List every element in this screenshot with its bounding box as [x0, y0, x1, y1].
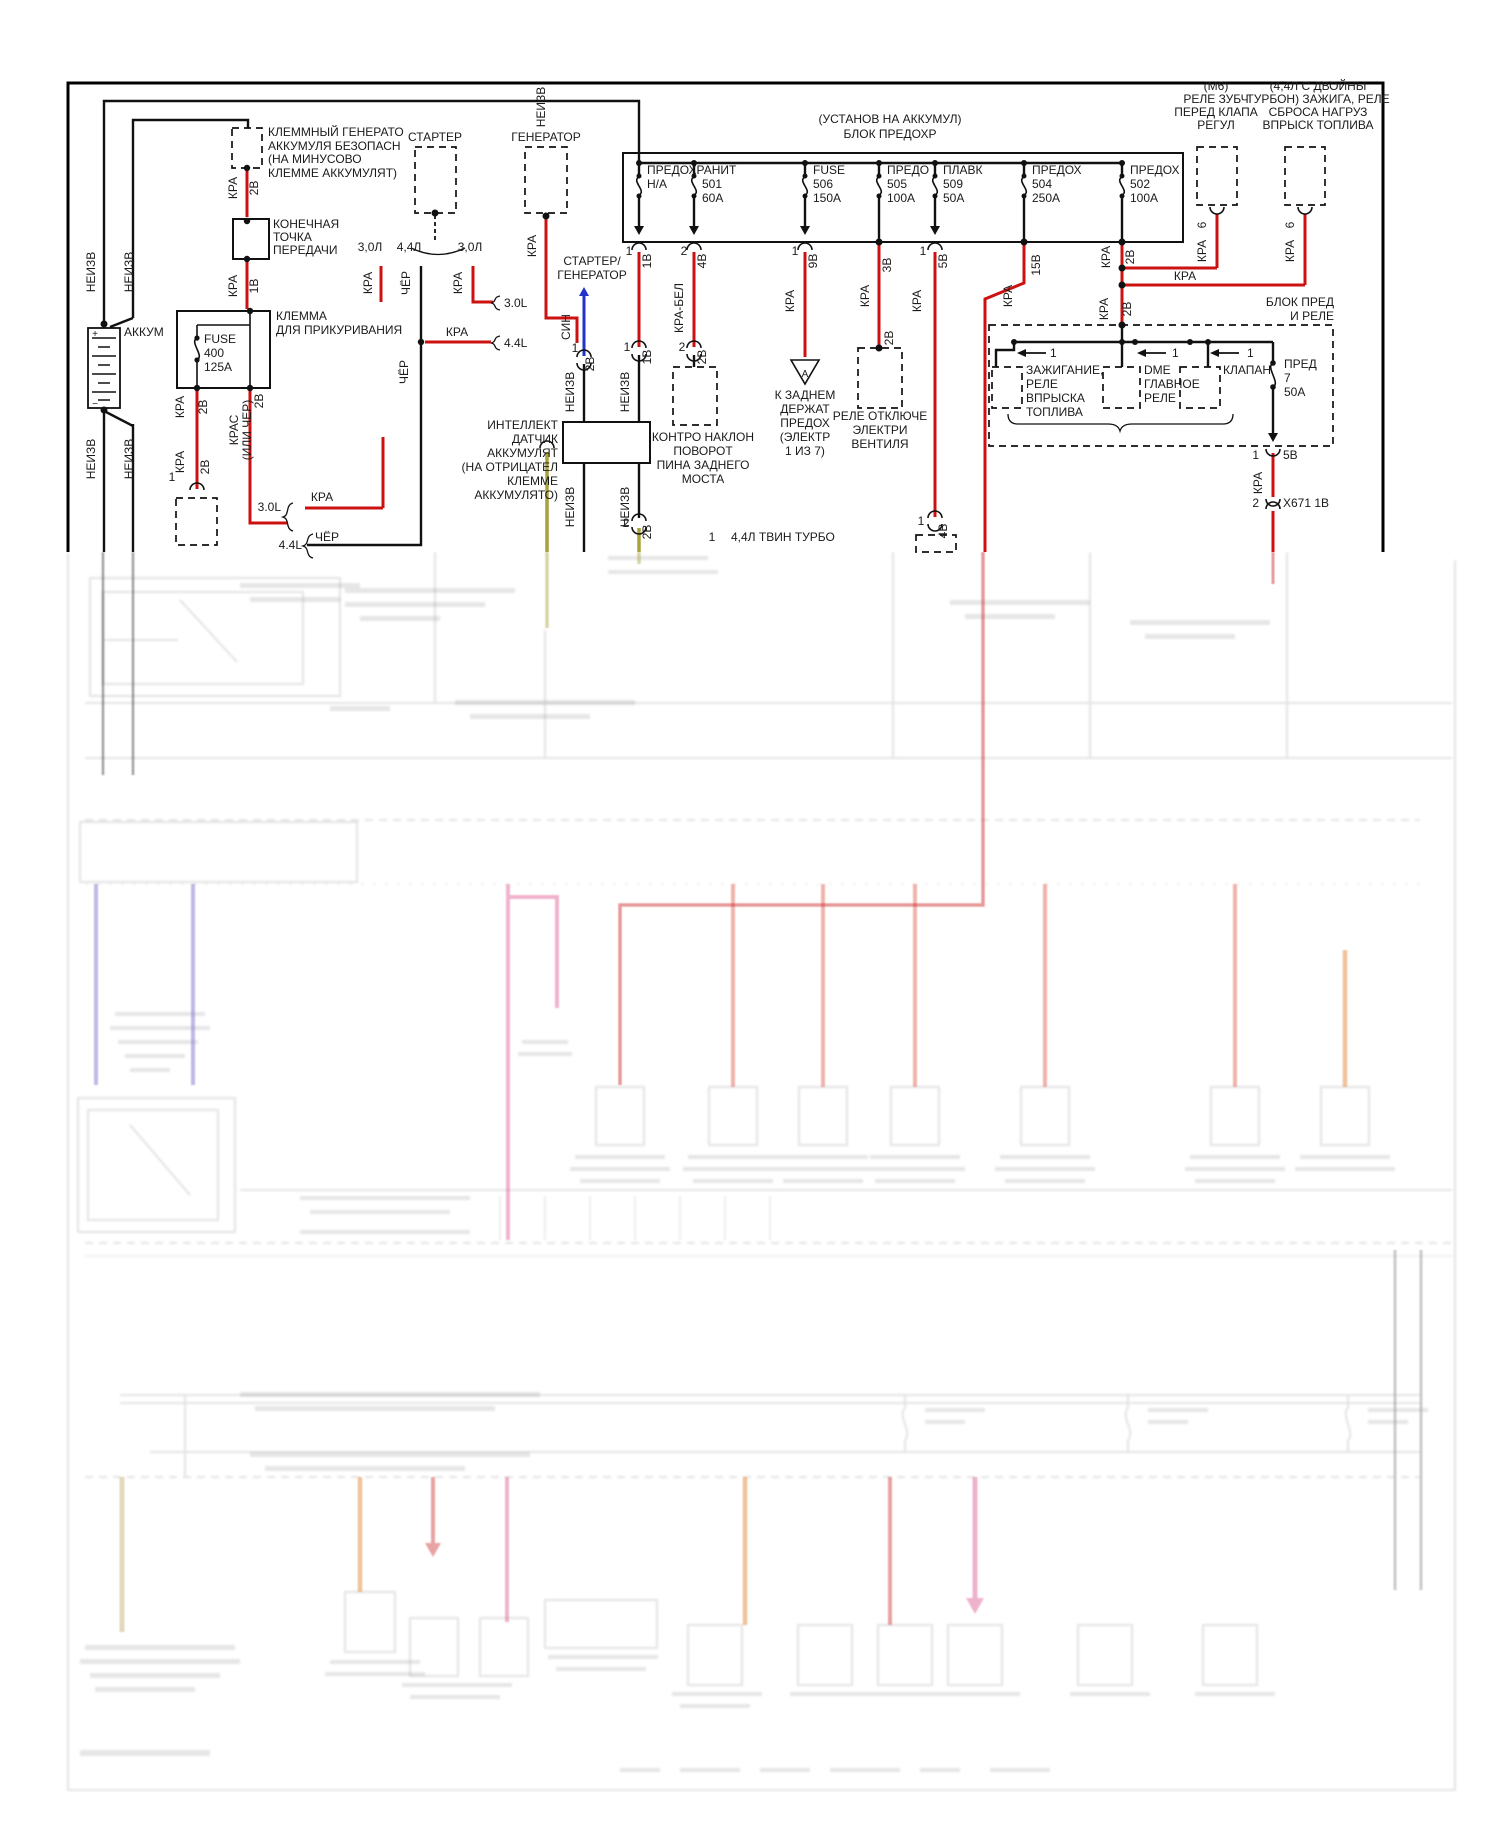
label-relayA-4: ТОПЛИВА	[1026, 405, 1083, 419]
label-sin: СИН	[559, 314, 573, 340]
label-pin-sin: 1	[572, 341, 579, 355]
label-kra-2: КРА	[226, 275, 240, 297]
label-f3-net: 9В	[806, 254, 820, 269]
label-relayA-pin: 1	[1050, 346, 1057, 360]
label-m6-relay-4: РЕГУЛ	[1197, 118, 1235, 132]
label-fuse1-val: Н/А	[647, 177, 667, 191]
label-f4-net2: 2В	[882, 331, 896, 346]
label-eng-44L1: 4.4L	[504, 336, 528, 350]
label-kontro-1: КОНТРО НАКЛОН	[652, 430, 754, 444]
label-f2-pin: 2	[681, 244, 688, 258]
label-vprysk-pin: 6	[1283, 221, 1297, 228]
label-pred7-1: ПРЕД	[1284, 357, 1317, 371]
label-note-term-gen-2: АККУМУЛЯ БЕЗОПАСН	[268, 139, 401, 153]
label-fuse7-name: ПРЕДОХ	[1130, 163, 1180, 177]
label-kontro-3: ПИНА ЗАДНЕГО	[657, 458, 750, 472]
label-tt-relay-3: СБРОСА НАГРУЗ	[1269, 105, 1368, 119]
label-neizv-int-1: НЕИЗВ	[563, 372, 577, 413]
wiring-diagram-page: КЛЕММНЫЙ ГЕНЕРАТОАККУМУЛЯ БЕЗОПАСН(НА МИ…	[0, 0, 1500, 1828]
label-endpoint-3: ПЕРЕДАЧИ	[273, 243, 337, 257]
label-note-term-gen-3: (НА МИНУСОВО	[268, 152, 362, 166]
label-fuse400-1: FUSE	[204, 332, 236, 346]
label-startgen-2: ГЕНЕРАТОР	[557, 268, 627, 282]
label-f3-kra: КРА	[783, 290, 797, 312]
label-triangle-a: А	[802, 369, 809, 380]
label-tt-relay-1: (4,4Л С ДВОЙНЫ	[1270, 78, 1367, 93]
label-x671-net: X671 1В	[1283, 496, 1329, 510]
label-fusebox-header-2: БЛОК ПРЕДОХР	[844, 127, 937, 141]
label-tt-relay-4: ВПРЫСК ТОПЛИВА	[1262, 118, 1373, 132]
label-battery-minus: −	[92, 399, 98, 410]
label-f6-net: 15В	[1029, 254, 1043, 275]
label-neizv-3: НЕИЗВ	[84, 439, 98, 480]
label-pred7-pin: 1	[1252, 448, 1259, 462]
label-intel-2: ДАТЧИК	[512, 432, 558, 446]
faded-captions	[80, 556, 1428, 1772]
label-eng-44L2: 4.4L	[279, 538, 303, 552]
label-fuse5-amp: 50A	[943, 191, 964, 205]
label-pin-1a: 1	[169, 470, 176, 484]
label-kzadnem-2: ДЕРЖАТ	[780, 402, 830, 416]
label-note-term-gen-1: КЛЕММНЫЙ ГЕНЕРАТО	[268, 124, 404, 139]
label-pred7-2: 7	[1284, 371, 1291, 385]
label-f7-net2: 2В	[1120, 302, 1134, 317]
label-f2-net2: 2В	[695, 350, 709, 365]
label-kra-horiz: КРА	[1174, 269, 1196, 283]
label-relay-otkl-1: РЕЛЕ ОТКЛЮЧЕ	[833, 409, 927, 423]
label-fuse6-num: 504	[1032, 177, 1052, 191]
label-f5-net: 5В	[936, 254, 950, 269]
label-relayA-1: ЗАЖИГАНИЕ,	[1026, 363, 1103, 377]
label-f5-pin: 1	[920, 244, 927, 258]
label-relayB-3: РЕЛЕ	[1144, 391, 1176, 405]
label-legend-text: 4,4Л ТВИН ТУРБО	[731, 530, 835, 544]
label-m6-relay-1: (М6)	[1204, 79, 1229, 93]
label-f6-kra: КРА	[1001, 285, 1015, 307]
label-cher-low: ЧЁР	[315, 530, 339, 544]
label-pred7-kra: КРА	[1251, 472, 1265, 494]
label-f5-kra: КРА	[910, 290, 924, 312]
label-kra-mid: КРА	[446, 325, 468, 339]
label-kontro-4: МОСТА	[682, 472, 725, 486]
label-kra-6: КРА	[451, 272, 465, 294]
label-fuse4-name: ПРЕДО	[887, 163, 929, 177]
crisp-inset-background	[60, 74, 1392, 552]
label-f1-net2: 1В	[640, 350, 654, 365]
label-intel-4: (НА ОТРИЦАТЕЛ	[462, 460, 558, 474]
label-kra-low: КРА	[311, 490, 333, 504]
label-kra-1: КРА	[226, 177, 240, 199]
label-cig-clamp-1: КЛЕММА	[276, 309, 327, 323]
label-neizv-int-3: НЕИЗВ	[563, 487, 577, 528]
label-endpoint-1: КОНЕЧНАЯ	[273, 217, 339, 231]
label-startgen-1: СТАРТЕР/	[563, 254, 621, 268]
label-f1-pin2: 1	[624, 340, 631, 354]
label-relayB-1: DME	[1144, 363, 1171, 377]
label-fuse400-3: 125A	[204, 360, 232, 374]
label-net-1v-1: 1В	[247, 279, 261, 294]
label-relay-otkl-3: ВЕНТИЛЯ	[851, 437, 908, 451]
label-note-term-gen-4: КЛЕММЕ АККУМУЛЯТ)	[268, 166, 397, 180]
label-f5-net2: 4В	[936, 524, 950, 539]
label-block-pred-1: БЛОК ПРЕД	[1266, 295, 1334, 309]
label-kontro-2: ПОВОРОТ	[673, 444, 733, 458]
label-cher-1: ЧЁР	[399, 271, 413, 295]
label-starter: СТАРТЕР	[408, 130, 462, 144]
label-f4-kra: КРА	[858, 285, 872, 307]
label-fuse7-amp: 100A	[1130, 191, 1158, 205]
label-intel-1: ИНТЕЛЛЕКТ	[487, 418, 558, 432]
label-fuse3-name: FUSE	[813, 163, 845, 177]
label-eng-44: 4,4Л	[397, 240, 422, 254]
label-relay-otkl-2: ЭЛЕКТРИ	[852, 423, 907, 437]
label-f2-pin2: 2	[679, 340, 686, 354]
label-kras: КРАС	[227, 414, 241, 445]
label-lowbump-net: 2В	[640, 525, 654, 540]
label-kra-5: КРА	[361, 272, 375, 294]
label-generator: ГЕНЕРАТОР	[511, 130, 581, 144]
label-endpoint-2: ТОЧКА	[273, 230, 312, 244]
label-kra-bel: КРА-БЕЛ	[672, 283, 686, 333]
label-fuse3-amp: 150A	[813, 191, 841, 205]
label-f7-kra: КРА	[1099, 246, 1113, 268]
label-vprysk-kra: КРА	[1283, 240, 1297, 262]
label-f1-net: 1В	[640, 254, 654, 269]
label-f1-pin: 1	[626, 244, 633, 258]
label-kra-gen: КРА	[525, 235, 539, 257]
bright-wire-continuations	[547, 552, 1273, 1085]
label-net-2v-1: 2В	[247, 181, 261, 196]
label-relayC-pin: 1	[1247, 346, 1254, 360]
label-fuse3-num: 506	[813, 177, 833, 191]
label-lowbump-pin: 2	[623, 516, 630, 530]
label-f4-net: 3В	[880, 258, 894, 273]
label-cig-clamp-2: ДЛЯ ПРИКУРИВАНИЯ	[276, 323, 402, 337]
label-relayC: КЛАПАН	[1223, 363, 1271, 377]
label-eng-30L2: 3.0L	[258, 500, 282, 514]
label-battery-label: АККУМ	[124, 325, 164, 339]
label-neizv-int-2: НЕИЗВ	[618, 372, 632, 413]
label-fuse2-num: 501	[702, 177, 722, 191]
label-kzadnem-5: 1 ИЗ 7)	[785, 444, 825, 458]
label-neizv-4: НЕИЗВ	[122, 439, 136, 480]
label-pred7-net: 5В	[1283, 448, 1298, 462]
label-fuse2-amp: 60A	[702, 191, 723, 205]
label-fuse6-name: ПРЕДОХ	[1032, 163, 1082, 177]
label-block-pred-2: И РЕЛЕ	[1290, 309, 1334, 323]
label-kzadnem-1: К ЗАДНЕМ	[775, 388, 836, 402]
label-f5-pin2: 1	[918, 514, 925, 528]
label-m6-relay-2: РЕЛЕ ЗУБЧ	[1183, 92, 1248, 106]
label-f7-kra2: КРА	[1097, 298, 1111, 320]
label-net-2v-2: 2В	[196, 400, 210, 415]
label-legend-num: 1	[709, 530, 716, 544]
label-intel-6: АККУМУЛЯТО)	[474, 488, 558, 502]
label-fuse5-num: 509	[943, 177, 963, 191]
label-regul-kra: КРА	[1195, 240, 1209, 262]
label-battery-plus: +	[92, 329, 98, 340]
diagram-canvas: КЛЕММНЫЙ ГЕНЕРАТОАККУМУЛЯ БЕЗОПАСН(НА МИ…	[0, 0, 1500, 1828]
label-fuse7-num: 502	[1130, 177, 1150, 191]
label-neizv-2: НЕИЗВ	[122, 252, 136, 293]
label-fuse1-name: ПРЕДОХРАНИТ	[647, 163, 737, 177]
label-kzadnem-4: (ЭЛЕКТР	[780, 430, 830, 444]
label-cher-2: ЧЁР	[397, 360, 411, 384]
label-m6-relay-3: ПЕРЕД КЛАПА	[1174, 105, 1257, 119]
label-net-2v-5: 2В	[583, 357, 597, 372]
label-relayA-2: РЕЛЕ	[1026, 377, 1058, 391]
label-tt-relay-2: ТУРБОН) ЗАЖИГА, РЕЛЕ	[1246, 92, 1389, 106]
label-fuse400-2: 400	[204, 346, 224, 360]
label-relayA-3: ВПРЫСКА	[1026, 391, 1085, 405]
label-eng-30a: 3,0Л	[358, 240, 383, 254]
label-f3-pin: 1	[792, 244, 799, 258]
label-regul-pin: 6	[1195, 221, 1209, 228]
label-f2-net: 4В	[695, 254, 709, 269]
label-intel-3: АККУМУЛЯТ	[487, 446, 559, 460]
label-relayB-2: ГЛАВНОЕ	[1144, 377, 1200, 391]
label-net-2v-3: 2В	[198, 460, 212, 475]
label-neizv-5: НЕИЗВ	[534, 87, 548, 128]
label-pred7-3: 50А	[1284, 385, 1305, 399]
label-x671-pin: 2	[1252, 496, 1259, 510]
label-neizv-1: НЕИЗВ	[84, 252, 98, 293]
label-eng-30b: 3,0Л	[458, 240, 483, 254]
label-kzadnem-3: ПРЕДОХ	[780, 416, 830, 430]
label-fuse6-amp: 250A	[1032, 191, 1060, 205]
label-intel-5: КЛЕММЕ	[507, 474, 558, 488]
label-eng-30L1: 3.0L	[504, 296, 528, 310]
label-net-2v-4: 2В	[252, 394, 266, 409]
label-fusebox-header-1: (УСТАНОВ НА АККУМУЛ)	[819, 112, 962, 126]
label-fuse5-name: ПЛАВК	[943, 163, 983, 177]
label-f7-net: 2В	[1123, 250, 1137, 265]
label-kra-3: КРА	[173, 396, 187, 418]
label-relayB-pin: 1	[1172, 346, 1179, 360]
label-fuse4-amp: 100A	[887, 191, 915, 205]
label-fuse4-num: 505	[887, 177, 907, 191]
